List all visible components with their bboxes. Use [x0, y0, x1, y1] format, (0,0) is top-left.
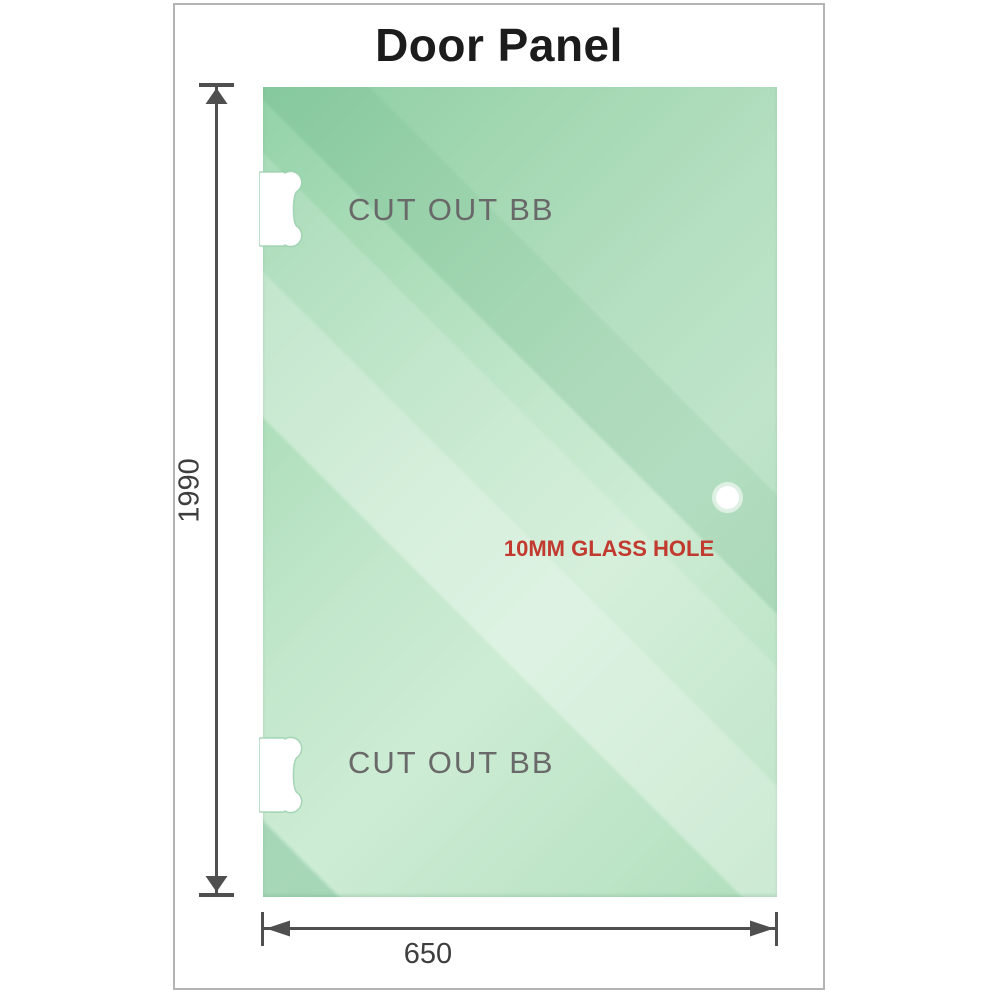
hinge-cutout-top-icon	[259, 166, 307, 252]
hinge-cutout-bottom-icon	[259, 732, 307, 818]
cutout-bottom-label: CUT OUT BB	[348, 747, 555, 778]
glass-hole-label: 10MM GLASS HOLE	[504, 538, 714, 560]
height-dimension-value: 1990	[176, 456, 205, 526]
glass-door-panel: CUT OUT BB CUT OUT BB 10MM GLASS HOLE	[263, 87, 777, 897]
glass-hole-icon	[712, 482, 743, 513]
cutout-top-label: CUT OUT BB	[348, 194, 555, 225]
diagram-page: Door Panel CUT OUT BB CUT OUT BB 10MM GL…	[0, 0, 1000, 1000]
width-dimension-value: 650	[398, 940, 458, 969]
page-title: Door Panel	[173, 18, 825, 72]
